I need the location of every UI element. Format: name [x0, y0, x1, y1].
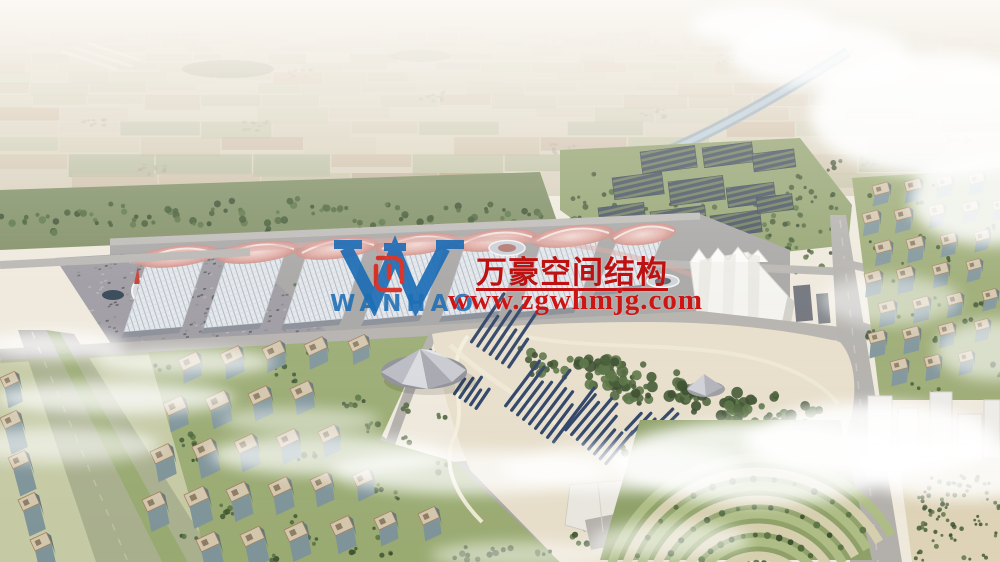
- aerial-render-expo-campus: WANHAO 万豪空间结构 www.zgwhmjg.com: [0, 0, 1000, 562]
- website-url-text: www.zgwhmjg.com: [448, 284, 703, 317]
